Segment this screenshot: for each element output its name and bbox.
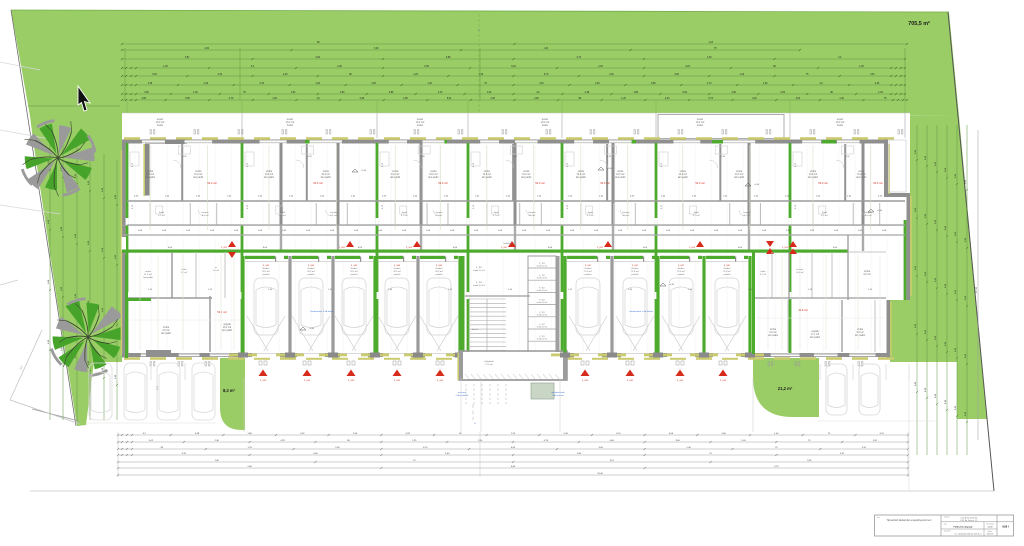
svg-text:6,1 m2: 6,1 m2	[436, 215, 443, 217]
svg-text:10,0 m2: 10,0 m2	[809, 174, 818, 176]
svg-text:20,5 m2: 20,5 m2	[435, 271, 443, 273]
svg-text:2,48: 2,48	[585, 92, 590, 94]
svg-text:2 db kerékpár: 2 db kerékpár	[456, 394, 469, 397]
svg-text:17,3 m2: 17,3 m2	[485, 364, 493, 366]
svg-text:52,0 m2: 52,0 m2	[818, 181, 828, 185]
svg-text:3,7 m2: 3,7 m2	[181, 272, 188, 274]
svg-text:3,00: 3,00	[374, 48, 379, 50]
svg-text:2,70: 2,70	[707, 83, 712, 85]
svg-text:Garden: Garden	[394, 267, 402, 270]
svg-text:6,1 m2: 6,1 m2	[744, 215, 751, 217]
svg-text:fürdő: fürdő	[280, 211, 286, 214]
svg-text:2,60: 2,60	[316, 57, 321, 59]
svg-text:705,5 m²: 705,5 m²	[908, 21, 930, 27]
svg-text:52,0 m2: 52,0 m2	[600, 181, 610, 185]
svg-text:10,0 m2: 10,0 m2	[857, 174, 866, 176]
svg-text:tároló 2,9 m2: tároló 2,9 m2	[537, 301, 548, 304]
svg-text:10,0 m2: 10,0 m2	[616, 174, 625, 176]
svg-text:52,0 m2: 52,0 m2	[695, 181, 705, 185]
svg-text:9,6 m2: 9,6 m2	[162, 330, 170, 332]
svg-text:2,70: 2,70	[438, 92, 443, 94]
svg-text:parkoló: parkoló	[263, 273, 271, 276]
svg-text:konyha: konyha	[744, 212, 752, 214]
svg-text:2,48: 2,48	[337, 66, 342, 68]
svg-text:2,48: 2,48	[360, 98, 365, 100]
svg-text:97,16: 97,16	[975, 286, 978, 293]
svg-text:F_006: F_006	[782, 247, 789, 249]
svg-text:1,40: 1,40	[839, 98, 844, 100]
svg-text:+0,00: +0,00	[877, 210, 883, 212]
svg-text:10,0 m2: 10,0 m2	[146, 174, 155, 176]
svg-text:10,0 m2: 10,0 m2	[429, 174, 438, 176]
svg-text:1,25: 1,25	[709, 42, 714, 44]
svg-text:Garden: Garden	[632, 267, 640, 270]
svg-text:tároló 2,9 m2: tároló 2,9 m2	[537, 289, 548, 292]
svg-text:lam.padló: lam.padló	[576, 177, 587, 179]
svg-text:lam.padló: lam.padló	[734, 177, 745, 179]
svg-text:6,85: 6,85	[389, 92, 394, 94]
svg-text:tervezett: tervezett	[458, 391, 466, 394]
svg-text:Garden: Garden	[678, 267, 686, 270]
svg-text:parkoló: parkoló	[678, 273, 686, 276]
svg-text:lam.padló: lam.padló	[855, 335, 866, 337]
svg-text:lam.padló: lam.padló	[482, 177, 493, 179]
svg-text:5,02: 5,02	[511, 66, 516, 68]
svg-text:szoba: szoba	[392, 171, 399, 173]
svg-text:1,00: 1,00	[707, 57, 712, 59]
svg-text:közlekedő: közlekedő	[503, 243, 513, 245]
svg-text:F_G07: F_G07	[585, 265, 592, 267]
svg-text:konyha: konyha	[528, 212, 536, 214]
svg-text:3,51: 3,51	[870, 74, 875, 76]
svg-text:fürdő: fürdő	[402, 211, 408, 214]
svg-text:1,25: 1,25	[621, 98, 626, 100]
svg-text:6,1 m2: 6,1 m2	[529, 215, 536, 217]
svg-text:F_G03: F_G03	[436, 265, 443, 267]
svg-text:1,85: 1,85	[424, 66, 429, 68]
svg-text:konyha: konyha	[435, 212, 443, 214]
svg-text:4,7 m2: 4,7 m2	[401, 215, 408, 217]
svg-text:rajzszám:: rajzszám:	[944, 531, 951, 533]
svg-text:52,0 m2: 52,0 m2	[438, 181, 448, 185]
svg-text:lam.padló: lam.padló	[521, 177, 532, 179]
svg-text:lam.padló: lam.padló	[768, 335, 779, 337]
svg-text:szoba: szoba	[864, 271, 871, 273]
svg-text:Garden: Garden	[436, 267, 444, 270]
svg-text:fürdő: fürdő	[159, 211, 165, 214]
svg-text:F_G03: F_G03	[351, 265, 358, 267]
svg-text:21,8 m2: 21,8 m2	[631, 271, 639, 273]
svg-text:parkoló: parkoló	[632, 273, 640, 276]
svg-text:10,0 m2: 10,0 m2	[391, 174, 400, 176]
svg-text:lam.padló: lam.padló	[193, 177, 204, 179]
svg-text:tároló 2,9 m2: tároló 2,9 m2	[537, 338, 548, 341]
svg-text:+0,00: +0,00	[669, 284, 675, 286]
svg-text:F_T02: F_T02	[476, 267, 483, 269]
svg-text:lam.padló: lam.padló	[145, 177, 156, 179]
svg-text:fedett: fedett	[837, 124, 843, 127]
svg-text:+0,00: +0,00	[361, 170, 367, 172]
svg-text:F_006: F_006	[501, 247, 508, 249]
svg-text:4,29: 4,29	[534, 98, 539, 100]
svg-text:5,02: 5,02	[152, 74, 157, 76]
svg-text:8,3 m²: 8,3 m²	[223, 388, 236, 393]
svg-text:10,0 m2: 10,0 m2	[194, 174, 203, 176]
svg-text:tároló 3,2 m2: tároló 3,2 m2	[473, 284, 486, 287]
svg-text:4,7 m2: 4,7 m2	[587, 215, 594, 217]
svg-text:6,85: 6,85	[185, 98, 190, 100]
svg-text:2,70: 2,70	[577, 57, 582, 59]
svg-text:szoba: szoba	[430, 171, 437, 173]
svg-text:+0,00: +0,00	[754, 184, 760, 186]
svg-text:szoba: szoba	[323, 171, 330, 173]
svg-text:6,70: 6,70	[709, 98, 714, 100]
svg-text:F_G05: F_G05	[437, 380, 444, 382]
svg-text:6,1 m2: 6,1 m2	[623, 215, 630, 217]
svg-text:Garden: Garden	[308, 267, 316, 270]
svg-text:52,0 m2: 52,0 m2	[873, 181, 883, 185]
svg-text:Társasház lakóépület engedélye: Társasház lakóépület engedélyezési terv	[886, 519, 932, 522]
svg-text:1,40: 1,40	[193, 92, 198, 94]
svg-text:lam.padló: lam.padló	[615, 177, 626, 179]
svg-text:1,00: 1,00	[763, 83, 768, 85]
svg-text:25,40: 25,40	[597, 473, 603, 475]
svg-text:1,00: 1,00	[272, 98, 277, 100]
svg-text:Tsz: Lakóépület földszinti 102: Tsz: Lakóépület földszinti 1024 E+sz	[954, 532, 981, 535]
svg-text:4,00: 4,00	[752, 98, 757, 100]
svg-text:szoba: szoba	[163, 327, 170, 329]
svg-text:1,85: 1,85	[634, 92, 639, 94]
svg-text:4,7 m2: 4,7 m2	[493, 215, 500, 217]
svg-text:tároló 2,9 m2: tároló 2,9 m2	[537, 326, 548, 329]
svg-text:Gardenzóna 1 db térkép: Gardenzóna 1 db térkép	[310, 310, 334, 313]
svg-text:szoba: szoba	[484, 171, 491, 173]
svg-text:3,7 m2: 3,7 m2	[760, 274, 767, 276]
svg-text:szoba: szoba	[617, 171, 624, 173]
svg-text:Garden: Garden	[585, 267, 593, 270]
svg-text:F_G05: F_G05	[304, 380, 311, 382]
svg-text:2,60: 2,60	[595, 83, 600, 85]
svg-text:lam.padló: lam.padló	[222, 330, 233, 332]
svg-text:parkoló: parkoló	[308, 273, 316, 276]
svg-text:2022.07: 2022.07	[987, 533, 994, 535]
svg-text:parkoló: parkoló	[724, 273, 732, 276]
svg-text:fedett: fedett	[542, 124, 548, 127]
svg-text:10,0 m2: 10,0 m2	[483, 174, 492, 176]
svg-text:5,02: 5,02	[447, 98, 452, 100]
svg-text:2,60: 2,60	[142, 98, 147, 100]
svg-text:17,1 m2: 17,1 m2	[811, 334, 820, 336]
svg-text:10,0 m2: 10,0 m2	[522, 174, 531, 176]
svg-text:11,2 m2: 11,2 m2	[144, 274, 153, 276]
svg-text:lam.padló: lam.padló	[264, 177, 275, 179]
svg-text:1,85: 1,85	[403, 98, 408, 100]
svg-text:konyha: konyha	[865, 212, 873, 214]
svg-text:52,0 m2: 52,0 m2	[535, 181, 545, 185]
svg-text:6,70: 6,70	[260, 83, 265, 85]
svg-text:3,00: 3,00	[796, 98, 801, 100]
svg-text:4,29: 4,29	[780, 92, 785, 94]
svg-text:Garden: Garden	[351, 267, 359, 270]
svg-text:1,40: 1,40	[427, 83, 432, 85]
svg-text:1,25: 1,25	[413, 74, 418, 76]
svg-text:F_G05: F_G05	[260, 380, 267, 382]
svg-text:20,5 m2: 20,5 m2	[307, 271, 315, 273]
svg-text:5,02: 5,02	[683, 92, 688, 94]
svg-text:3,00: 3,00	[144, 92, 149, 94]
svg-text:10,6 m2: 10,6 m2	[796, 272, 804, 274]
svg-text:lam.padló: lam.padló	[390, 177, 401, 179]
svg-text:szoba: szoba	[736, 171, 743, 173]
svg-text:F_G07: F_G07	[724, 265, 731, 267]
svg-text:fedett: fedett	[157, 124, 163, 127]
svg-text:F_G05: F_G05	[627, 380, 634, 382]
svg-text:F_G05: F_G05	[677, 380, 684, 382]
svg-text:6,85: 6,85	[651, 83, 656, 85]
svg-text:F_006: F_006	[221, 247, 228, 249]
svg-text:6,70: 6,70	[544, 74, 549, 76]
svg-text:52,0 m2: 52,0 m2	[207, 181, 217, 185]
svg-text:2,30: 2,30	[731, 92, 736, 94]
svg-text:+0,00: +0,00	[607, 168, 613, 170]
svg-text:Garden: Garden	[724, 267, 732, 270]
svg-text:fürdő: fürdő	[182, 268, 188, 271]
svg-text:2,70: 2,70	[229, 98, 234, 100]
svg-text:közlekedő: közlekedő	[484, 361, 494, 363]
svg-text:9,6 m2: 9,6 m2	[769, 332, 777, 334]
svg-text:1,25: 1,25	[859, 66, 864, 68]
svg-text:4,7 m2: 4,7 m2	[693, 215, 700, 217]
svg-text:6,1 m2: 6,1 m2	[202, 215, 209, 217]
svg-text:52,1 m2: 52,1 m2	[217, 310, 227, 314]
svg-text:F_G05: F_G05	[720, 380, 727, 382]
svg-text:F_G03: F_G03	[394, 265, 401, 267]
svg-text:+0,00: +0,00	[309, 328, 315, 330]
svg-text:10,0 m2: 10,0 m2	[265, 174, 274, 176]
svg-text:fedett: fedett	[417, 124, 423, 127]
svg-text:parkoló: parkoló	[436, 273, 444, 276]
svg-text:4,00: 4,00	[609, 74, 614, 76]
svg-text:lam.padló: lam.padló	[856, 177, 867, 179]
svg-text:52,0 m2: 52,0 m2	[313, 181, 323, 185]
svg-text:10,0 m2: 10,0 m2	[322, 174, 331, 176]
svg-text:Kiss Építésziroda Kft: Kiss Építésziroda Kft	[961, 516, 978, 519]
svg-text:tároló 2,9 m2: tároló 2,9 m2	[537, 313, 548, 316]
svg-text:tároló 3,5 m2: tároló 3,5 m2	[473, 269, 486, 272]
svg-text:konyha: konyha	[330, 212, 338, 214]
svg-text:fürdő: fürdő	[694, 211, 700, 214]
svg-text:2,30: 2,30	[490, 98, 495, 100]
svg-text:6,85: 6,85	[446, 57, 451, 59]
svg-text:1:100: 1:100	[987, 527, 993, 529]
svg-text:lam.padló: lam.padló	[321, 177, 332, 179]
svg-text:1,40: 1,40	[544, 48, 549, 50]
svg-text:1,40: 1,40	[740, 74, 745, 76]
svg-text:2,30: 2,30	[598, 66, 603, 68]
svg-text:parkoló: parkoló	[351, 273, 359, 276]
svg-text:2,60: 2,60	[340, 92, 345, 94]
svg-text:1021 Bp. Fasor u. 12.: 1021 Bp. Fasor u. 12.	[960, 520, 978, 522]
svg-text:konyha: konyha	[622, 212, 630, 214]
svg-text:fürdő: fürdő	[761, 270, 767, 273]
svg-text:21,8 m2: 21,8 m2	[723, 271, 731, 273]
svg-text:fürdő: fürdő	[822, 211, 828, 214]
svg-text:8,68 f: 8,68 f	[1002, 526, 1008, 529]
svg-text:Garden: Garden	[263, 267, 271, 270]
svg-text:fürdő: fürdő	[494, 211, 500, 214]
svg-text:F_006: F_006	[597, 247, 604, 249]
svg-text:szoba: szoba	[810, 171, 817, 173]
svg-text:3,00: 3,00	[674, 74, 679, 76]
svg-text:F_006: F_006	[339, 247, 346, 249]
svg-text:szoba: szoba	[195, 171, 202, 173]
svg-text:9,0 m2: 9,0 m2	[863, 274, 871, 276]
svg-text:F_G07: F_G07	[678, 265, 685, 267]
svg-text:1,25: 1,25	[878, 92, 883, 94]
svg-text:szoba: szoba	[680, 171, 687, 173]
svg-text:4,29: 4,29	[685, 66, 690, 68]
svg-text:1,0 m2: 1,0 m2	[213, 270, 220, 272]
svg-text:F_006: F_006	[689, 247, 696, 249]
svg-text:szoba: szoba	[266, 171, 273, 173]
svg-text:F_006: F_006	[406, 247, 413, 249]
svg-text:tároló 2,9 m2: tároló 2,9 m2	[537, 277, 548, 280]
svg-text:2,48: 2,48	[875, 83, 880, 85]
svg-text:4,00: 4,00	[205, 48, 210, 50]
svg-text:lam.padló: lam.padló	[678, 177, 689, 179]
svg-text:tároló 2,9 m2: tároló 2,9 m2	[537, 265, 548, 268]
svg-text:2,40: 2,40	[204, 83, 209, 85]
svg-text:szoba: szoba	[523, 171, 530, 173]
svg-text:lam.padló: lam.padló	[161, 333, 172, 335]
svg-text:3,51: 3,51	[291, 92, 296, 94]
svg-text:20,5 m2: 20,5 m2	[262, 271, 270, 273]
svg-text:F_G05: F_G05	[394, 380, 401, 382]
svg-text:F_G03: F_G03	[263, 265, 270, 267]
svg-text:21,8 m2: 21,8 m2	[584, 271, 592, 273]
svg-text:parkoló: parkoló	[585, 273, 593, 276]
svg-text:4,7 m2: 4,7 m2	[821, 215, 828, 217]
svg-text:10,0 m2: 10,0 m2	[577, 174, 586, 176]
svg-text:nappali: nappali	[811, 331, 819, 333]
svg-text:21,2 m²: 21,2 m²	[778, 386, 793, 391]
svg-text:21,8 m2: 21,8 m2	[677, 271, 685, 273]
svg-text:1,25: 1,25	[148, 83, 153, 85]
svg-text:2,40: 2,40	[665, 98, 670, 100]
svg-text:3,51: 3,51	[539, 83, 544, 85]
svg-text:3,51: 3,51	[185, 57, 190, 59]
svg-text:kerékpártároló: kerékpártároló	[551, 391, 565, 394]
svg-text:szoba: szoba	[770, 329, 777, 331]
svg-text:Földszinti alaprajz: Földszinti alaprajz	[954, 525, 974, 528]
svg-text:F_T03: F_T03	[476, 282, 483, 284]
svg-text:lépcső: lépcső	[472, 329, 479, 331]
svg-text:2 db részére: 2 db részére	[552, 394, 564, 397]
svg-text:szoba: szoba	[145, 271, 152, 273]
svg-text:6,1 m2: 6,1 m2	[865, 215, 872, 217]
svg-text:6,1 m2: 6,1 m2	[330, 215, 337, 217]
svg-text:9,6 m2: 9,6 m2	[856, 332, 864, 334]
svg-text:4,29: 4,29	[283, 74, 288, 76]
svg-text:3,00: 3,00	[371, 83, 376, 85]
svg-text:szoba: szoba	[858, 171, 865, 173]
svg-text:20,5 m2: 20,5 m2	[393, 271, 401, 273]
svg-text:F_G03: F_G03	[308, 265, 315, 267]
svg-text:2,30: 2,30	[218, 74, 223, 76]
svg-text:lam.padló: lam.padló	[428, 177, 439, 179]
svg-text:nappali: nappali	[223, 324, 231, 326]
svg-text:2,40: 2,40	[479, 74, 484, 76]
svg-text:szoba: szoba	[578, 171, 585, 173]
svg-text:Gardenzóna 1 db térkép: Gardenzóna 1 db térkép	[629, 310, 653, 313]
svg-text:wc: wc	[215, 267, 217, 269]
svg-text:F_G05: F_G05	[348, 380, 355, 382]
svg-text:1,00: 1,00	[163, 66, 168, 68]
svg-text:4,7 m2: 4,7 m2	[279, 215, 286, 217]
svg-text:konyha: konyha	[202, 212, 210, 214]
svg-text:fedett: fedett	[697, 124, 703, 127]
svg-text:F_G07: F_G07	[632, 265, 639, 267]
svg-text:4,7 m2: 4,7 m2	[158, 215, 165, 217]
svg-text:konyha: konyha	[797, 269, 805, 271]
svg-text:20,5 m2: 20,5 m2	[350, 271, 358, 273]
svg-text:szoba: szoba	[147, 171, 154, 173]
svg-text:lam.padló: lam.padló	[143, 277, 153, 279]
svg-text:10,0 m2: 10,0 m2	[735, 174, 744, 176]
svg-text:fedett: fedett	[287, 124, 293, 127]
svg-text:1,00: 1,00	[487, 92, 492, 94]
svg-text:4,00: 4,00	[316, 83, 321, 85]
svg-text:fürdő: fürdő	[588, 211, 594, 214]
svg-text:lam.padló: lam.padló	[810, 337, 821, 339]
svg-text:16,2 m2: 16,2 m2	[223, 327, 232, 329]
svg-text:lam.padló: lam.padló	[808, 177, 819, 179]
svg-text:10,0 m2: 10,0 m2	[679, 174, 688, 176]
svg-text:parkoló: parkoló	[394, 273, 402, 276]
svg-text:F_G05: F_G05	[582, 380, 589, 382]
